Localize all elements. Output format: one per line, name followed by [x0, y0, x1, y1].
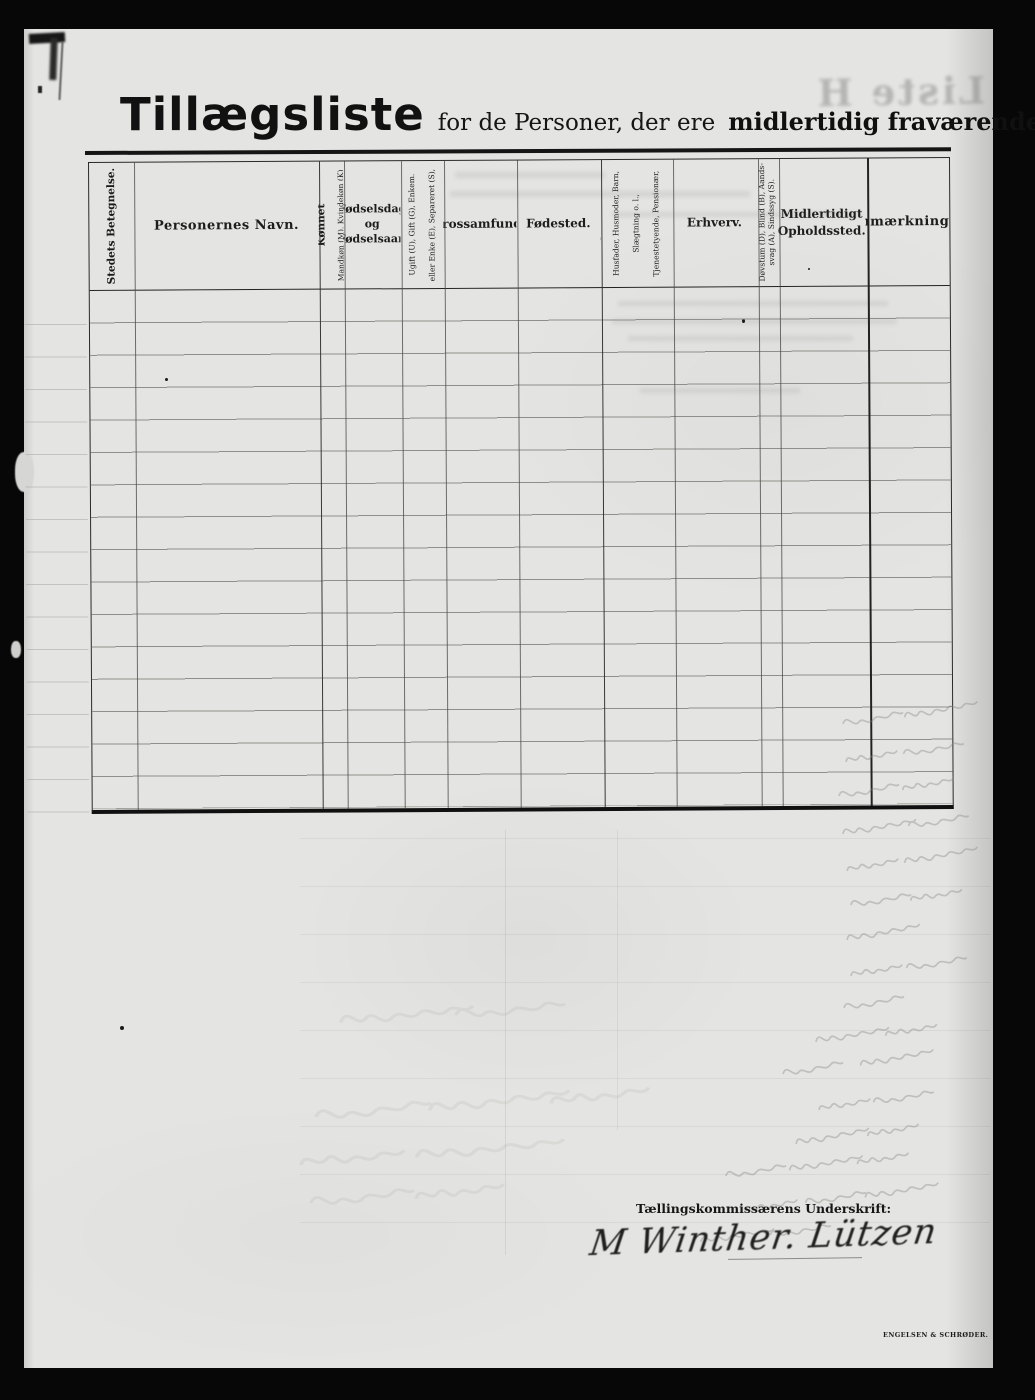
enumerator-signature-label: Tællingskommissærens Underskrift: [636, 1201, 891, 1216]
bleedthrough-handwriting-layer [0, 0, 1035, 1400]
scanned-census-form: Liste H Tillægsliste for de Personer, de… [0, 0, 1035, 1400]
printer-mark: ENGELSEN & SCHRØDER. [883, 1331, 988, 1339]
